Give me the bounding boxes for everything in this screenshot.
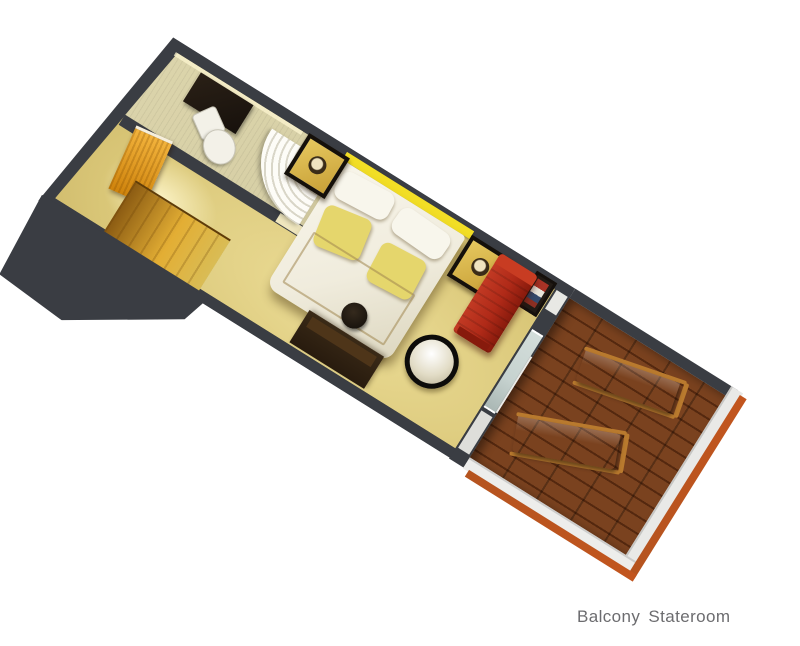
caption: Balcony Stateroom [577,607,730,627]
table-lamp [305,153,330,178]
stateroom-figure: Balcony Stateroom [0,0,800,646]
floorplan-rotated-group [0,12,761,646]
